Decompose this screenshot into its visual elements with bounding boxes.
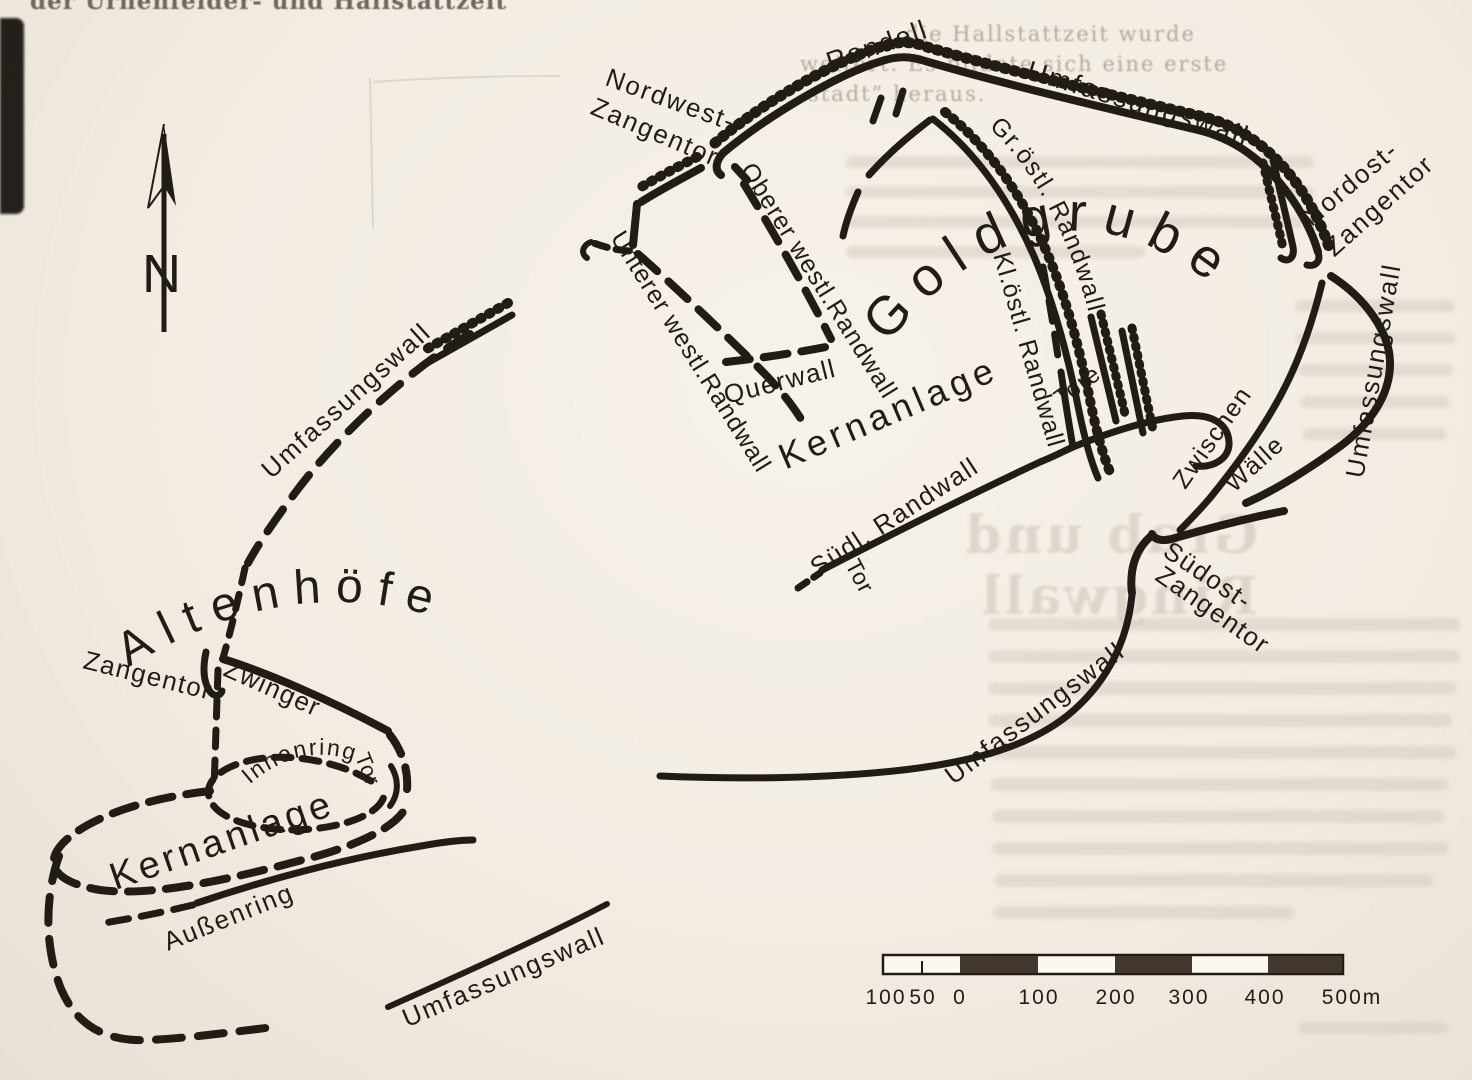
- goldgrube-se-gate-hook: [1131, 537, 1150, 593]
- label-suedl-randwall: Südl. Randwall: [804, 451, 983, 582]
- goldgrube-inner-wall-segment: [843, 192, 858, 236]
- label-innenring: Innenring: [236, 734, 361, 789]
- goldgrube-top-dash-b: [896, 91, 903, 114]
- goldgrube-se-gate-top-wall: [1152, 511, 1284, 540]
- scale-tick-label: 500m: [1322, 986, 1383, 1009]
- scale-tick-label: 400: [1244, 986, 1285, 1009]
- scale-tick-label: 100: [1018, 986, 1059, 1009]
- altenhoefe-labels: Altenhöfe Umfassungswall Zangentor Zwing…: [80, 316, 609, 1033]
- altenhoefe-title: Altenhöfe: [107, 559, 453, 676]
- goldgrube-nw-curl: [583, 242, 591, 258]
- scale-tick-label: 0: [953, 986, 967, 1009]
- paper-fold-lines: [370, 76, 560, 228]
- goldgrube-labels: Goldgrube Rondell Nordwest- Zangentor Um…: [587, 14, 1440, 790]
- altenhoefe-innenring-tor-hook: [390, 766, 397, 806]
- label-rondell: Rondell: [822, 14, 932, 77]
- site-map-svg: N: [0, 0, 1472, 1080]
- goldgrube-ne-gate-hook: [1307, 252, 1319, 265]
- scale-bar-tick-labels: 100 50 0 100 200 300 400 500m: [865, 986, 1382, 1009]
- label-unterer-westl-randwall: Unterer westl.Randwall: [605, 226, 777, 477]
- label-umfassungswall-suedost: Umfassungswall: [939, 635, 1131, 790]
- scale-bar-segment-dark: [1115, 956, 1192, 973]
- scale-tick-label: 100: [865, 986, 906, 1009]
- north-arrow: N: [142, 124, 182, 332]
- goldgrube-top-dash-a: [873, 98, 881, 121]
- scale-tick-label: 300: [1168, 986, 1209, 1009]
- label-umfassungswall-nord: Umfassungswall: [1024, 55, 1254, 151]
- label-zwinger: Zwinger: [220, 653, 326, 722]
- goldgrube-inner-branch-wall: [869, 120, 930, 175]
- label-umfassungswall-nw: Umfassungswall: [255, 316, 437, 484]
- scale-bar: 100 50 0 100 200 300 400 500m: [865, 955, 1382, 1009]
- label-umfassungswall-sw: Umfassungswall: [398, 920, 610, 1033]
- scale-bar-segment-dark: [960, 956, 1038, 973]
- scale-tick-label: 200: [1095, 986, 1136, 1009]
- scale-tick-label: 50: [909, 986, 936, 1009]
- altenhoefe-gate-passage-dashed: [214, 670, 218, 789]
- scale-bar-segment-dark: [1268, 956, 1342, 973]
